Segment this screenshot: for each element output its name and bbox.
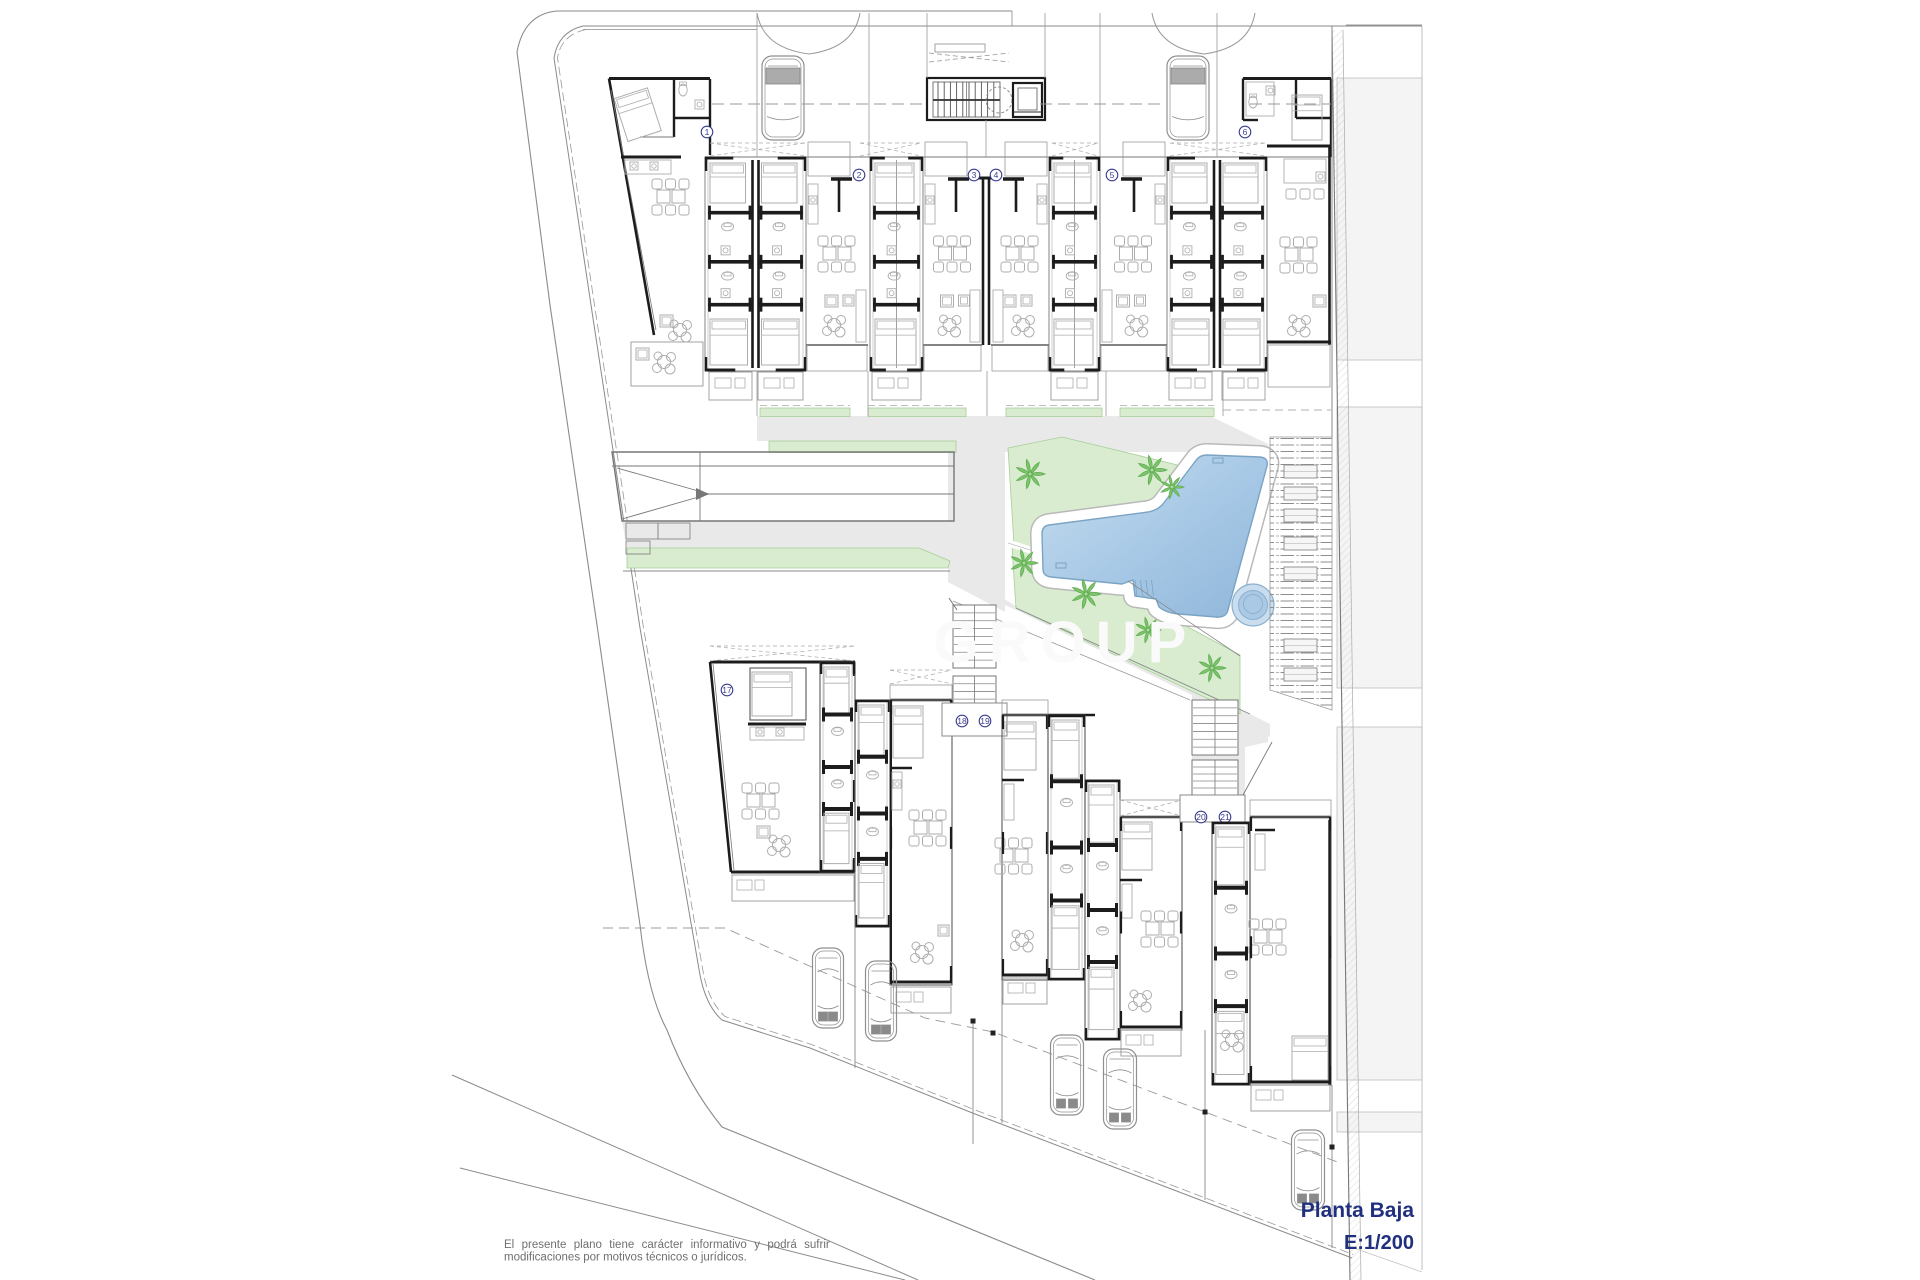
svg-text:El presente plano tiene caráct: El presente plano tiene carácter informa… (504, 1239, 830, 1251)
svg-text:4: 4 (994, 170, 999, 180)
svg-text:modificaciones por motivos téc: modificaciones por motivos técnicos o ju… (504, 1252, 747, 1264)
svg-text:1: 1 (705, 127, 710, 137)
svg-text:18: 18 (957, 716, 967, 726)
svg-text:17: 17 (722, 685, 732, 695)
svg-text:2: 2 (857, 170, 862, 180)
svg-text:19: 19 (980, 716, 990, 726)
svg-text:21: 21 (1220, 812, 1230, 822)
svg-text:Planta Baja: Planta Baja (1301, 1199, 1415, 1222)
svg-text:20: 20 (1196, 812, 1206, 822)
svg-text:E:1/200: E:1/200 (1344, 1232, 1414, 1254)
svg-text:GROUP: GROUP (934, 610, 1197, 675)
svg-text:6: 6 (1243, 127, 1248, 137)
svg-text:5: 5 (1110, 170, 1115, 180)
svg-text:3: 3 (972, 170, 977, 180)
